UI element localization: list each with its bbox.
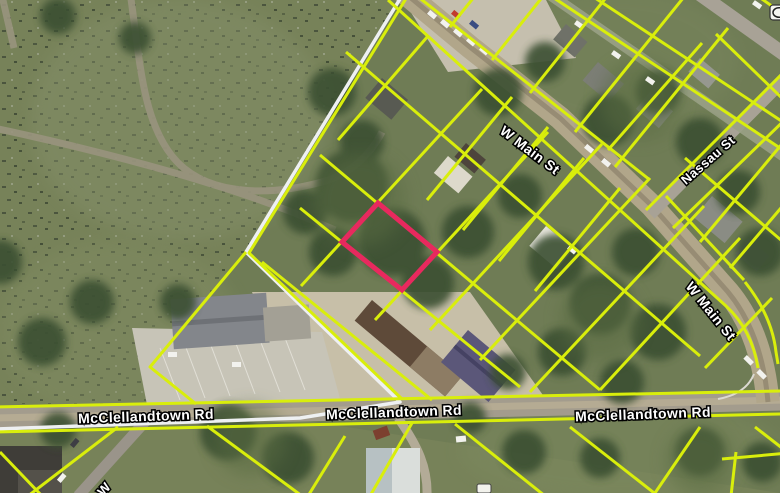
route-shield-partial bbox=[477, 484, 491, 493]
map-canvas[interactable]: W Main St Nassau St W Main St McClelland… bbox=[0, 0, 780, 493]
route-shield bbox=[770, 5, 780, 20]
